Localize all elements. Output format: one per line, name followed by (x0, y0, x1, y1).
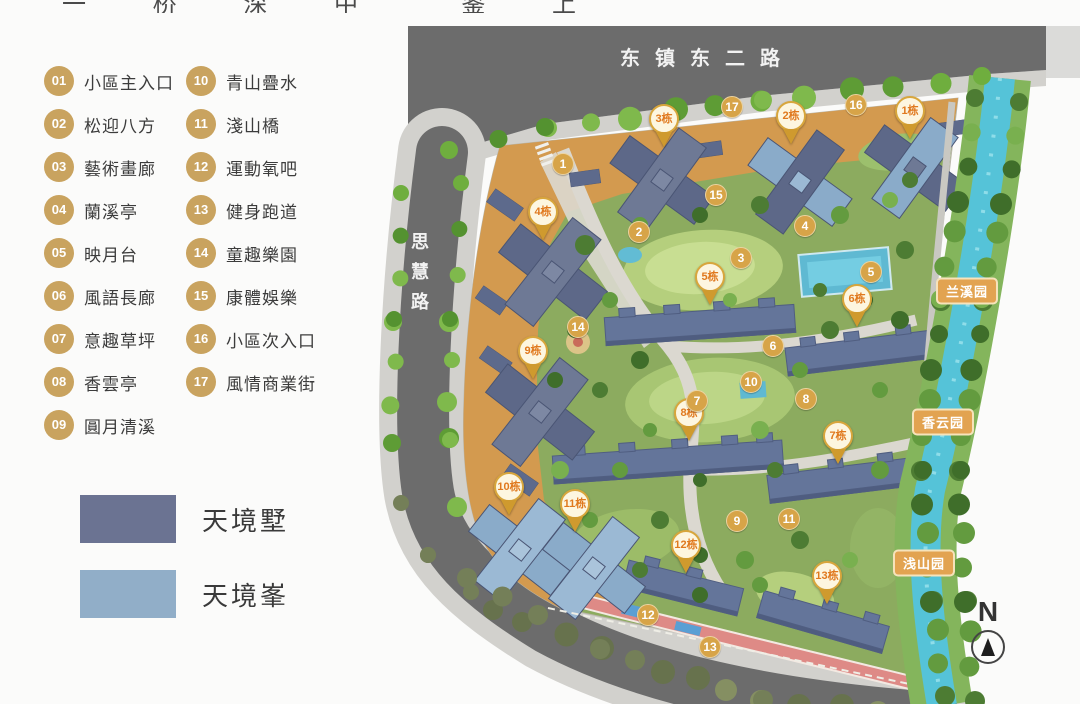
legend-number-badge: 05 (44, 238, 74, 268)
legend-item-14: 14童趣樂園 (186, 238, 316, 268)
legend-item-02: 02松迎八方 (44, 109, 174, 139)
legend-item-label: 風情商業街 (226, 370, 316, 395)
legend-number-badge: 01 (44, 66, 74, 96)
legend-item-label: 小區次入口 (226, 327, 316, 352)
building-pin-label: 9栋 (518, 336, 548, 366)
legend-swatch-row-2: 天境峯 (80, 570, 289, 618)
building-pin-label: 6栋 (842, 284, 872, 314)
amenity-marker-9: 9 (726, 510, 748, 532)
legend-number-badge: 02 (44, 109, 74, 139)
legend-item-label: 青山疊水 (226, 69, 298, 94)
building-pin-label: 3栋 (649, 104, 679, 134)
legend-item-04: 04蘭溪亭 (44, 195, 174, 225)
park-badge: 香云园 (912, 409, 974, 436)
legend-swatch-label: 天境峯 (202, 576, 289, 613)
legend-item-label: 蘭溪亭 (84, 198, 138, 223)
north-arrow-icon (971, 630, 1005, 664)
building-pin-3栋: 3栋 (648, 104, 680, 147)
legend-item-label: 童趣樂園 (226, 241, 298, 266)
amenity-marker-11: 11 (778, 508, 800, 530)
building-pin-6栋: 6栋 (841, 284, 873, 327)
legend-number-badge: 09 (44, 410, 74, 440)
building-pin-tail-icon (681, 426, 697, 441)
amenity-marker-7: 7 (686, 390, 708, 412)
building-pin-13栋: 13栋 (811, 561, 843, 604)
legend-item-17: 17風情商業街 (186, 367, 316, 397)
building-pin-10栋: 10栋 (493, 472, 525, 515)
amenity-marker-17: 17 (721, 96, 743, 118)
legend-item-01: 01小區主入口 (44, 66, 174, 96)
building-pin-label: 13栋 (812, 561, 842, 591)
legend-number-badge: 08 (44, 367, 74, 397)
legend-item-06: 06風語長廊 (44, 281, 174, 311)
building-pin-label: 11栋 (560, 489, 590, 519)
legend-number-badge: 15 (186, 281, 216, 311)
legend-item-05: 05映月台 (44, 238, 174, 268)
building-pin-tail-icon (819, 589, 835, 604)
amenity-marker-12: 12 (637, 604, 659, 626)
amenity-marker-8: 8 (795, 388, 817, 410)
legend-panel: 01小區主入口02松迎八方03藝術畫廊04蘭溪亭05映月台06風語長廊07意趣草… (0, 0, 360, 704)
amenity-marker-14: 14 (567, 316, 589, 338)
legend-number-badge: 07 (44, 324, 74, 354)
legend-swatch-color (80, 495, 176, 543)
building-pin-7栋: 7栋 (822, 421, 854, 464)
legend-swatches: 天境墅天境峯 (80, 495, 289, 645)
amenity-marker-6: 6 (762, 335, 784, 357)
legend-item-03: 03藝術畫廊 (44, 152, 174, 182)
amenity-marker-16: 16 (845, 94, 867, 116)
legend-number-badge: 12 (186, 152, 216, 182)
legend-item-label: 健身跑道 (226, 198, 298, 223)
building-pin-tail-icon (830, 449, 846, 464)
legend-swatch-color (80, 570, 176, 618)
building-pin-1栋: 1栋 (894, 96, 926, 139)
legend-item-label: 淺山橋 (226, 112, 280, 137)
legend-item-label: 運動氧吧 (226, 155, 298, 180)
legend-number-badge: 03 (44, 152, 74, 182)
north-compass: N (971, 598, 1005, 664)
legend-number-badge: 06 (44, 281, 74, 311)
legend-item-label: 香雲亭 (84, 370, 138, 395)
building-pin-4栋: 4栋 (527, 197, 559, 240)
legend-item-10: 10青山疊水 (186, 66, 316, 96)
building-pin-label: 5栋 (695, 262, 725, 292)
legend-item-label: 風語長廊 (84, 284, 156, 309)
building-pin-tail-icon (501, 500, 517, 515)
building-pin-tail-icon (525, 364, 541, 379)
amenity-marker-4: 4 (794, 215, 816, 237)
amenity-marker-10: 10 (740, 371, 762, 393)
legend-number-badge: 13 (186, 195, 216, 225)
legend-number-badge: 14 (186, 238, 216, 268)
building-pin-2栋: 2栋 (775, 101, 807, 144)
legend-item-16: 16小區次入口 (186, 324, 316, 354)
legend-column-2: 10青山疊水11淺山橋12運動氧吧13健身跑道14童趣樂園15康體娛樂16小區次… (186, 66, 316, 410)
building-pin-label: 12栋 (671, 530, 701, 560)
legend-item-label: 小區主入口 (84, 69, 174, 94)
building-pin-tail-icon (656, 132, 672, 147)
amenity-marker-2: 2 (628, 221, 650, 243)
building-pin-tail-icon (567, 517, 583, 532)
building-pin-12栋: 12栋 (670, 530, 702, 573)
amenity-marker-3: 3 (730, 247, 752, 269)
building-pin-label: 10栋 (494, 472, 524, 502)
legend-item-12: 12運動氧吧 (186, 152, 316, 182)
building-pin-tail-icon (535, 225, 551, 240)
legend-item-13: 13健身跑道 (186, 195, 316, 225)
legend-swatch-row-1: 天境墅 (80, 495, 289, 543)
legend-number-badge: 04 (44, 195, 74, 225)
park-badge: 浅山园 (893, 550, 955, 577)
building-pin-label: 7栋 (823, 421, 853, 451)
amenity-marker-5: 5 (860, 261, 882, 283)
amenity-marker-13: 13 (699, 636, 721, 658)
legend-item-11: 11淺山橋 (186, 109, 316, 139)
building-pin-label: 1栋 (895, 96, 925, 126)
building-pin-tail-icon (702, 290, 718, 305)
legend-item-label: 康體娛樂 (226, 284, 298, 309)
building-pin-tail-icon (783, 129, 799, 144)
site-plan-page: 一 桥 深 中 鉴 上 一 层 东镇东二路 思慧路 1栋2栋3栋4栋5栋6栋7栋… (0, 0, 1080, 704)
amenity-marker-1: 1 (552, 153, 574, 175)
building-pin-label: 4栋 (528, 197, 558, 227)
building-pin-tail-icon (678, 558, 694, 573)
north-label: N (971, 598, 1005, 626)
legend-item-label: 意趣草坪 (84, 327, 156, 352)
legend-item-label: 圓月清溪 (84, 413, 156, 438)
legend-number-badge: 16 (186, 324, 216, 354)
legend-item-label: 藝術畫廊 (84, 155, 156, 180)
legend-number-badge: 17 (186, 367, 216, 397)
legend-item-15: 15康體娛樂 (186, 281, 316, 311)
amenity-marker-15: 15 (705, 184, 727, 206)
legend-column-1: 01小區主入口02松迎八方03藝術畫廊04蘭溪亭05映月台06風語長廊07意趣草… (44, 66, 174, 453)
building-pin-label: 2栋 (776, 101, 806, 131)
legend-swatch-label: 天境墅 (202, 501, 289, 538)
legend-item-label: 松迎八方 (84, 112, 156, 137)
park-badge: 兰溪园 (936, 278, 998, 305)
legend-item-08: 08香雲亭 (44, 367, 174, 397)
building-pin-9栋: 9栋 (517, 336, 549, 379)
legend-number-badge: 10 (186, 66, 216, 96)
legend-item-09: 09圓月清溪 (44, 410, 174, 440)
building-pin-5栋: 5栋 (694, 262, 726, 305)
legend-item-07: 07意趣草坪 (44, 324, 174, 354)
legend-item-label: 映月台 (84, 241, 138, 266)
legend-number-badge: 11 (186, 109, 216, 139)
building-pin-tail-icon (902, 124, 918, 139)
building-pin-11栋: 11栋 (559, 489, 591, 532)
building-pin-tail-icon (849, 312, 865, 327)
